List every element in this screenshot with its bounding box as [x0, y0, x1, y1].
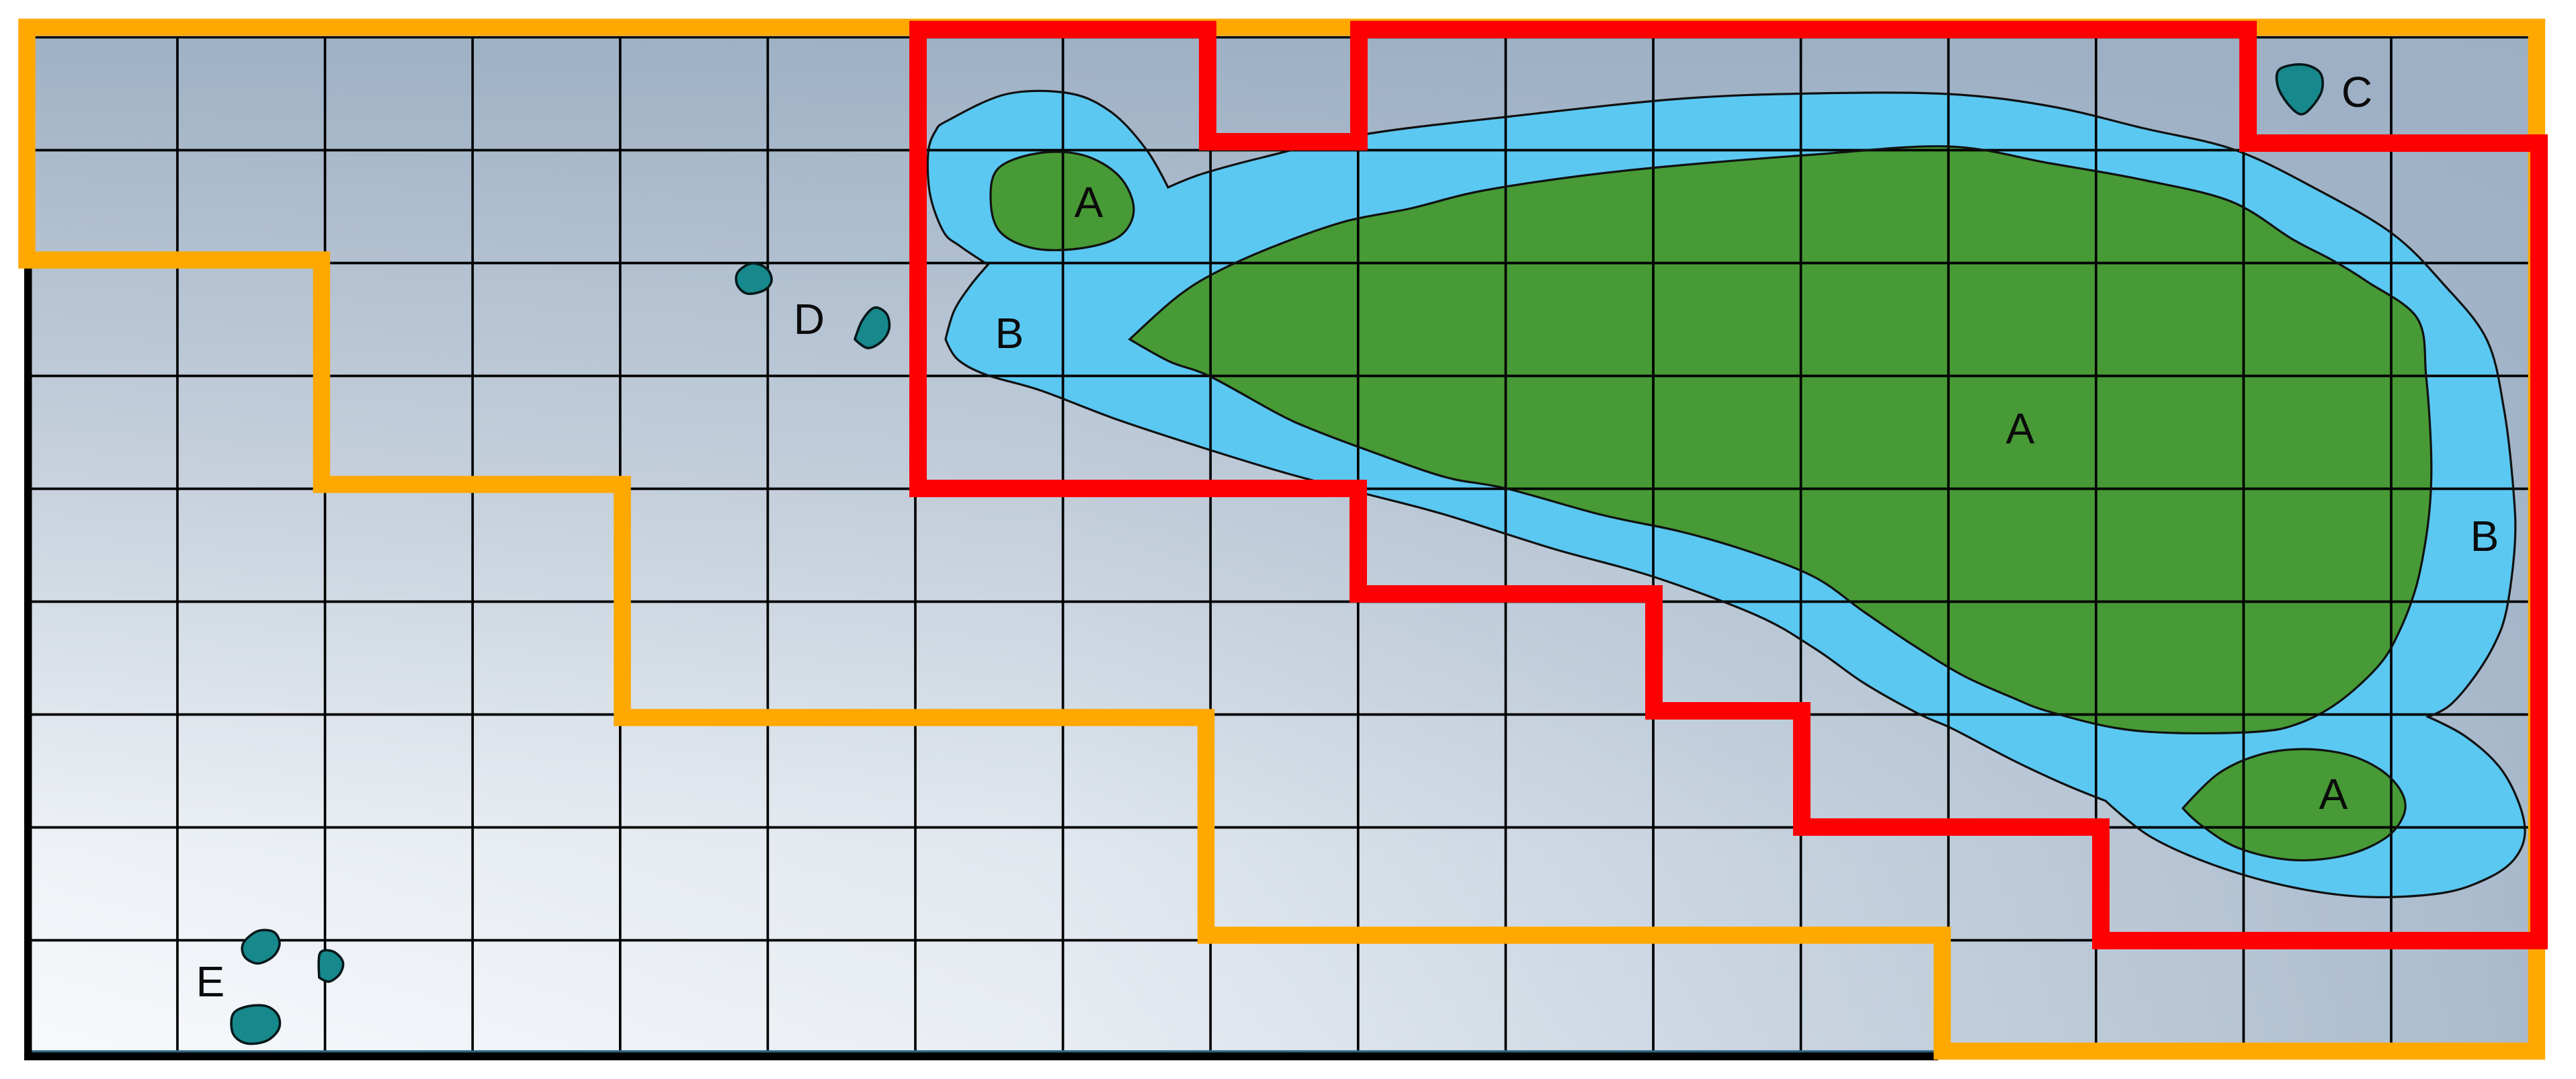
svg-text:A: A	[1075, 178, 1104, 226]
svg-text:A: A	[2319, 770, 2348, 818]
svg-text:E: E	[196, 957, 225, 1006]
svg-text:B: B	[2470, 512, 2499, 560]
svg-text:A: A	[2006, 404, 2035, 453]
svg-text:C: C	[2341, 68, 2372, 116]
svg-text:B: B	[995, 309, 1024, 357]
svg-text:D: D	[794, 295, 825, 343]
